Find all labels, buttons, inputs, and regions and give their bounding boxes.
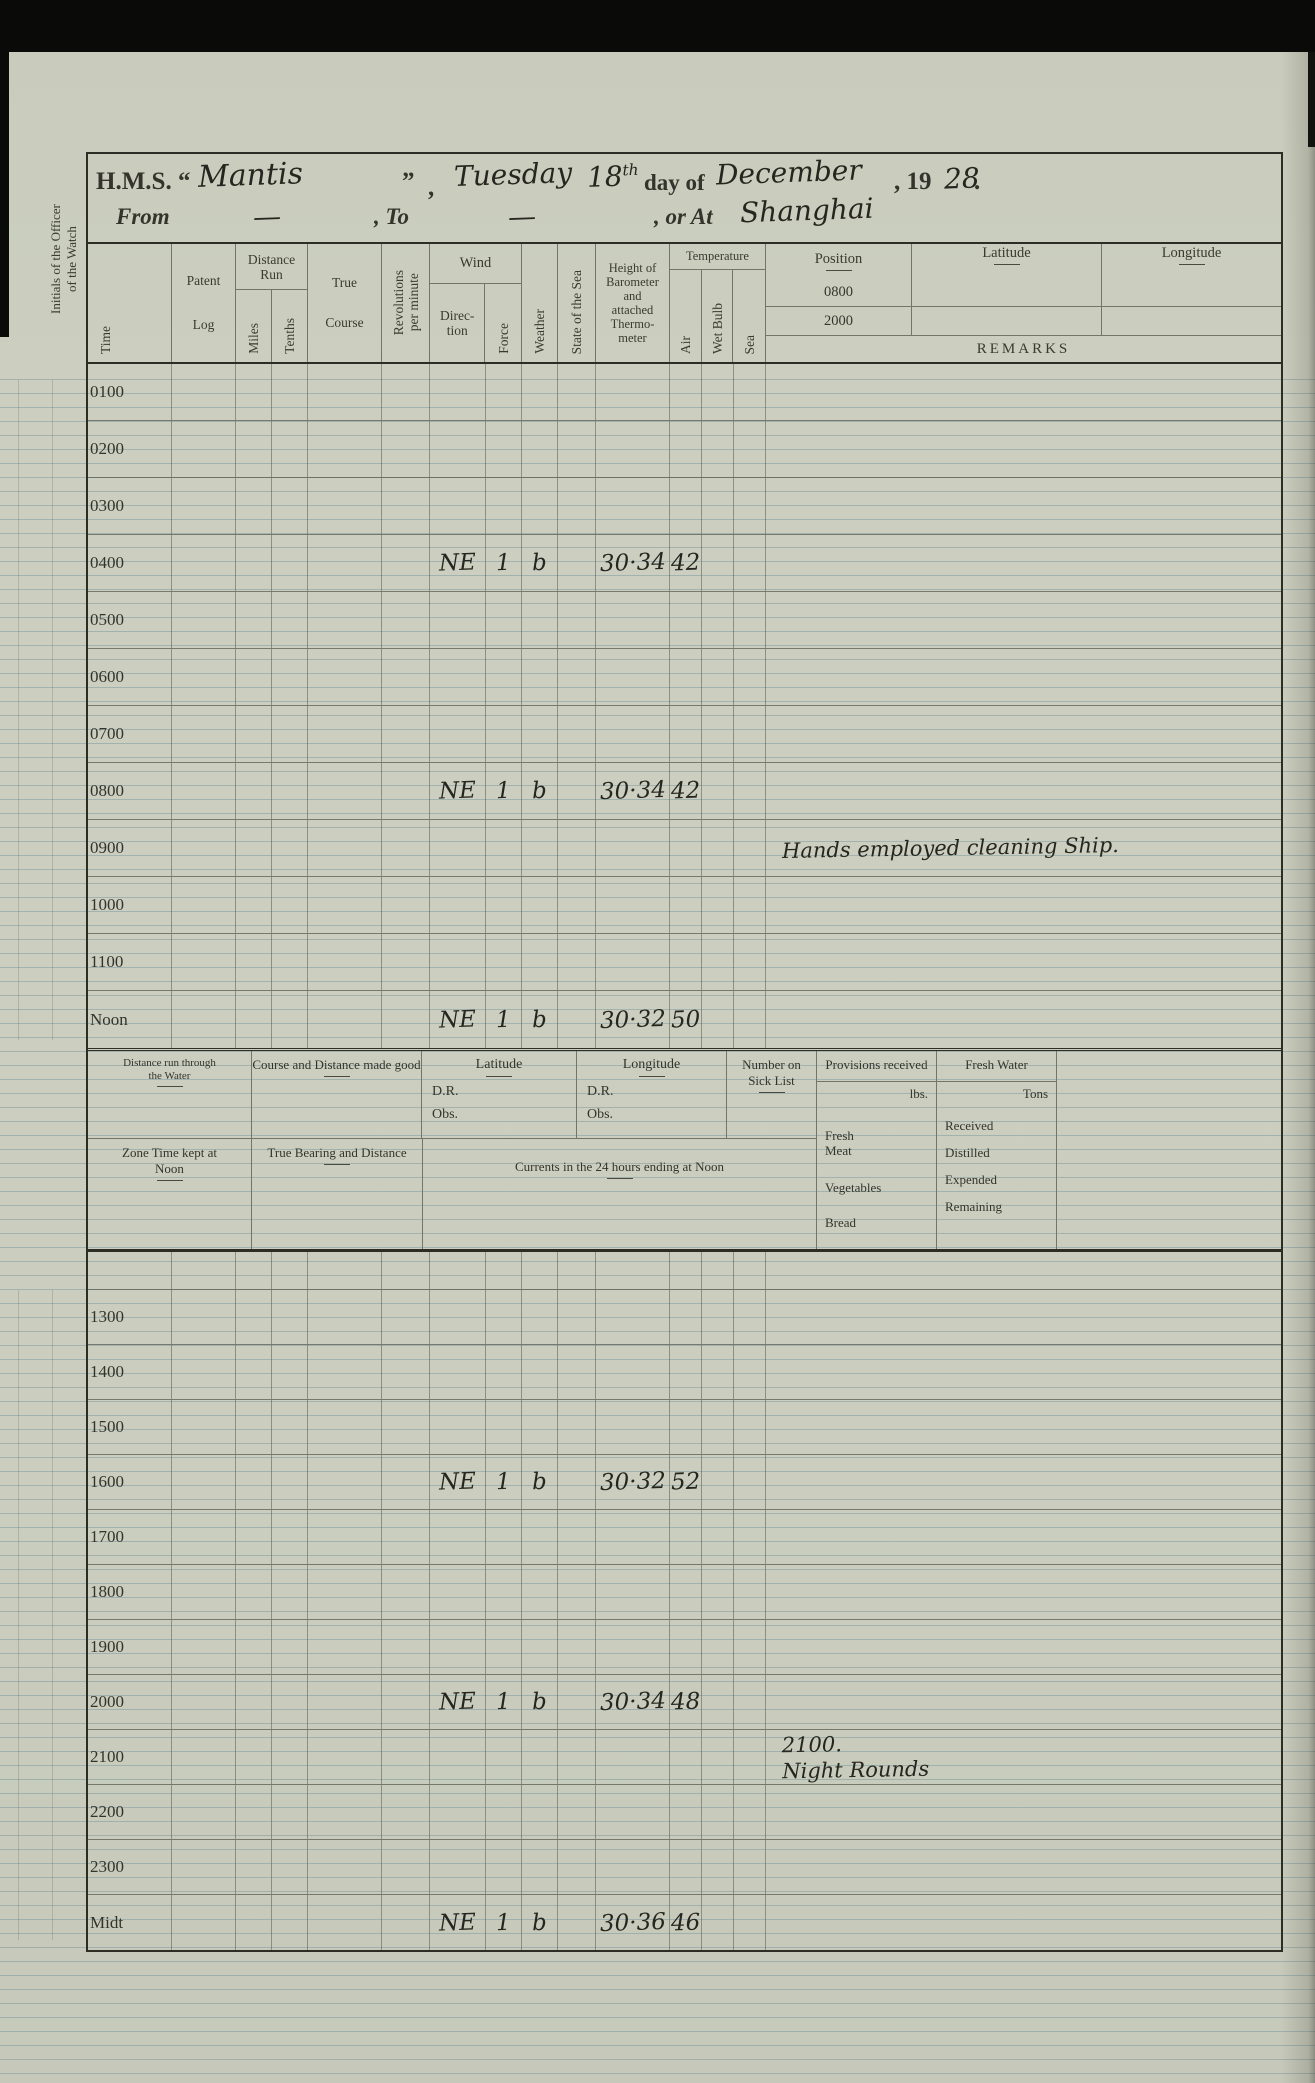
revolutions-cell	[382, 820, 430, 876]
sea-temp-cell	[734, 706, 766, 762]
miles-cell	[236, 1345, 272, 1399]
wind-force-column-header: Force	[485, 284, 521, 362]
log-row: 0200	[88, 421, 1281, 478]
margin-bleed-line	[52, 380, 53, 1040]
sea-temp-cell	[734, 1455, 766, 1509]
wind-direction-cell	[430, 1400, 486, 1454]
barometer-cell: 30·32	[596, 991, 670, 1048]
wind-force-cell	[486, 592, 522, 648]
wind-force-cell	[486, 421, 522, 477]
gap-cell	[272, 1252, 308, 1289]
patent-log-column-header: Patent Log	[172, 244, 236, 362]
wet-bulb-cell	[702, 1675, 734, 1729]
weather-cell	[522, 1730, 558, 1784]
true-course-cell	[308, 1840, 382, 1894]
gap-cell	[734, 1252, 766, 1289]
revolutions-label: Revolutions per minute	[391, 270, 421, 335]
wind-direction-cell: NE	[430, 1675, 486, 1729]
remarks-cell	[766, 1565, 1281, 1619]
barometer-cell	[596, 1400, 670, 1454]
patent-log-cell	[172, 1675, 236, 1729]
barometer-cell	[596, 877, 670, 933]
wind-force-cell	[486, 1290, 522, 1344]
true-course-cell	[308, 1400, 382, 1454]
summary-latitude-cell: Latitude D.R. Obs.	[422, 1051, 577, 1138]
time-value: 0400	[90, 553, 124, 573]
true-course-label: True Course	[325, 273, 363, 333]
patent-log-cell	[172, 478, 236, 534]
revolutions-cell	[382, 478, 430, 534]
wind-direction-cell	[430, 1510, 486, 1564]
sea-state-cell	[558, 1840, 596, 1894]
remarks-cell	[766, 1675, 1281, 1729]
revolutions-cell	[382, 421, 430, 477]
wind-force-cell: 1	[486, 763, 522, 819]
patent-log-cell	[172, 364, 236, 420]
distilled-label: Distilled	[937, 1145, 990, 1160]
sea-temp-cell	[734, 1785, 766, 1839]
weather-value: b	[532, 550, 548, 576]
zone-time-label: Zone Time kept at Noon	[122, 1145, 217, 1177]
weather-cell	[522, 934, 558, 990]
weather-label: Weather	[532, 309, 547, 354]
log-row: 1800	[88, 1565, 1281, 1620]
sea-state-cell	[558, 1895, 596, 1950]
log-row: Noon NE 1 b 30·32 50	[88, 991, 1281, 1048]
log-row: 0100	[88, 364, 1281, 421]
sea-state-cell	[558, 535, 596, 591]
margin-bleed-line	[18, 1290, 19, 1940]
wind-force-cell	[486, 649, 522, 705]
time-cell: 0600	[88, 649, 172, 705]
position-lat-long-header-row: Position Latitude Longitude	[766, 244, 1281, 278]
barometer-cell: 30·34	[596, 1675, 670, 1729]
time-cell: 1500	[88, 1400, 172, 1454]
summary-left-group: Distance run through the Water Course an…	[88, 1051, 817, 1249]
wind-direction-cell: NE	[430, 1895, 486, 1950]
true-course-cell	[308, 1730, 382, 1784]
barometer-cell	[596, 478, 670, 534]
wind-subheaders: Direc- tion Force	[430, 284, 521, 362]
scan-edge-top	[0, 0, 1315, 52]
patent-log-cell	[172, 1455, 236, 1509]
air-temp-cell	[670, 1620, 702, 1674]
remarks-cell	[766, 1455, 1281, 1509]
gap-cell	[766, 1252, 1281, 1289]
wet-bulb-cell	[702, 1730, 734, 1784]
weather-value: b	[532, 1909, 548, 1935]
weather-cell	[522, 364, 558, 420]
time-value: 2100	[90, 1747, 124, 1767]
true-course-cell	[308, 1455, 382, 1509]
wet-bulb-cell	[702, 592, 734, 648]
wind-force-cell	[486, 364, 522, 420]
officer-initials-note: Initials of the Officer of the Watch	[48, 152, 84, 367]
air-temp-cell	[670, 820, 702, 876]
wind-force-cell	[486, 1620, 522, 1674]
wind-direction-cell: NE	[430, 991, 486, 1048]
wind-direction-cell: NE	[430, 763, 486, 819]
true-course-cell	[308, 364, 382, 420]
revolutions-cell	[382, 991, 430, 1048]
tenths-cell	[272, 820, 308, 876]
tenths-cell	[272, 763, 308, 819]
log-row: 0600	[88, 649, 1281, 706]
time-cell: 0400	[88, 535, 172, 591]
gap-cell	[522, 1252, 558, 1289]
wind-header: Wind	[430, 244, 521, 284]
morning-log-rows: 0100 0200	[88, 364, 1281, 1048]
day-of-label: day of	[644, 170, 705, 196]
log-row: 2000 NE 1 b 30·34 48	[88, 1675, 1281, 1730]
wind-direction-cell	[430, 1620, 486, 1674]
true-course-cell	[308, 592, 382, 648]
wind-direction-cell	[430, 478, 486, 534]
true-course-cell	[308, 649, 382, 705]
true-course-cell	[308, 1620, 382, 1674]
patent-log-label: Patent Log	[187, 270, 221, 336]
weather-cell: b	[522, 535, 558, 591]
summary-top-band: Distance run through the Water Course an…	[88, 1051, 817, 1139]
air-column-header: Air	[670, 270, 702, 362]
time-value: 2300	[90, 1857, 124, 1877]
barometer-cell	[596, 1290, 670, 1344]
barometer-value: 30·32	[599, 1005, 666, 1033]
weather-cell: b	[522, 991, 558, 1048]
column-header-row: Time Patent Log Distance Run Miles Tenth…	[88, 242, 1281, 364]
time-value: Noon	[90, 1010, 128, 1030]
longitude-obs-label: Obs.	[577, 1107, 613, 1123]
barometer-value: 30·34	[599, 777, 666, 805]
noon-summary-section: Distance run through the Water Course an…	[88, 1048, 1281, 1252]
weather-cell: b	[522, 763, 558, 819]
time-value: 1000	[90, 895, 124, 915]
weather-cell	[522, 820, 558, 876]
miles-label: Miles	[246, 323, 261, 354]
log-row: 2100 2100. Night Rounds	[88, 1730, 1281, 1785]
wet-bulb-cell	[702, 649, 734, 705]
sea-state-label: State of the Sea	[569, 270, 584, 354]
time-value: 0200	[90, 439, 124, 459]
tenths-cell	[272, 478, 308, 534]
air-temp-cell	[670, 649, 702, 705]
wind-direction-cell	[430, 820, 486, 876]
miles-cell	[236, 763, 272, 819]
sea-state-cell	[558, 1400, 596, 1454]
gap-cell	[486, 1252, 522, 1289]
log-row: 1600 NE 1 b 30·32 52	[88, 1455, 1281, 1510]
true-course-cell	[308, 535, 382, 591]
true-course-cell	[308, 706, 382, 762]
revolutions-cell	[382, 1455, 430, 1509]
patent-log-cell	[172, 421, 236, 477]
air-temp-cell: 52	[670, 1455, 702, 1509]
air-temp-cell	[670, 1565, 702, 1619]
wet-bulb-cell	[702, 1455, 734, 1509]
miles-cell	[236, 1400, 272, 1454]
time-value: 0300	[90, 496, 124, 516]
tenths-cell	[272, 421, 308, 477]
distance-run-group-header: Distance Run Miles Tenths	[236, 244, 308, 362]
wind-force-cell	[486, 478, 522, 534]
time-cell: 1800	[88, 1565, 172, 1619]
log-row: 2200	[88, 1785, 1281, 1840]
air-temp-cell: 50	[670, 991, 702, 1048]
revolutions-cell	[382, 649, 430, 705]
wet-bulb-cell	[702, 877, 734, 933]
revolutions-cell	[382, 535, 430, 591]
time-value: Midt	[90, 1913, 123, 1933]
rule-dash	[994, 264, 1020, 265]
wet-bulb-cell	[702, 1840, 734, 1894]
patent-log-cell	[172, 1785, 236, 1839]
patent-log-cell	[172, 1730, 236, 1784]
revolutions-cell	[382, 1565, 430, 1619]
vegetables-label: Vegetables	[817, 1180, 881, 1195]
wind-force-cell	[486, 1565, 522, 1619]
remarks-cell	[766, 991, 1281, 1048]
wind-force-cell: 1	[486, 1895, 522, 1950]
expended-label: Expended	[937, 1172, 997, 1187]
true-course-column-header: True Course	[308, 244, 382, 362]
received-label: Received	[937, 1118, 993, 1133]
remark-value: 2100. Night Rounds	[782, 1730, 930, 1785]
barometer-cell	[596, 934, 670, 990]
wind-force-cell	[486, 820, 522, 876]
remarks-cell: 2100. Night Rounds	[766, 1730, 1281, 1784]
currents-cell: Currents in the 24 hours ending at Noon	[423, 1139, 817, 1249]
miles-cell	[236, 1895, 272, 1950]
sea-state-column-header: State of the Sea	[558, 244, 596, 362]
revolutions-cell	[382, 1895, 430, 1950]
air-temp-cell	[670, 1510, 702, 1564]
miles-cell	[236, 991, 272, 1048]
log-row: 1900	[88, 1620, 1281, 1675]
time-cell: 1700	[88, 1510, 172, 1564]
wind-force-value: 1	[496, 1469, 512, 1495]
to-label: , To	[374, 204, 409, 230]
log-row: 2300	[88, 1840, 1281, 1895]
temperature-label: Temperature	[686, 249, 749, 264]
time-value: 1100	[90, 952, 123, 972]
barometer-column-header: Height of Barometer and attached Thermo-…	[596, 244, 670, 362]
sea-temp-cell	[734, 763, 766, 819]
wind-force-value: 1	[496, 1006, 512, 1032]
temperature-subheaders: Air Wet Bulb Sea	[670, 270, 765, 362]
latitude-dr-label: D.R.	[422, 1084, 458, 1100]
sea-state-cell	[558, 1455, 596, 1509]
barometer-cell	[596, 1565, 670, 1619]
wind-force-cell: 1	[486, 535, 522, 591]
log-row: 1500	[88, 1400, 1281, 1455]
weather-cell	[522, 1510, 558, 1564]
latitude-label: Latitude	[982, 246, 1030, 261]
sick-list-label: Number on Sick List	[742, 1057, 801, 1089]
weather-cell	[522, 478, 558, 534]
wind-label: Wind	[460, 256, 492, 271]
wet-bulb-cell	[702, 478, 734, 534]
miles-cell	[236, 592, 272, 648]
time-value: 0700	[90, 724, 124, 744]
wet-bulb-cell	[702, 421, 734, 477]
tenths-cell	[272, 1290, 308, 1344]
remark-value: Hands employed cleaning Ship.	[782, 832, 1119, 864]
weather-cell	[522, 1785, 558, 1839]
wet-bulb-cell	[702, 934, 734, 990]
ship-name: Mantis	[197, 156, 303, 195]
air-temp-cell	[670, 1730, 702, 1784]
barometer-value: 30·34	[599, 549, 666, 577]
sea-temp-cell	[734, 1345, 766, 1399]
barometer-cell	[596, 1620, 670, 1674]
rule-dash	[607, 1178, 633, 1179]
distance-through-water-cell: Distance run through the Water	[88, 1051, 252, 1138]
scanned-logbook-page: Initials of the Officer of the Watch H.M…	[0, 0, 1315, 2083]
to-value: —	[507, 200, 536, 234]
log-row: 1300	[88, 1290, 1281, 1345]
gap-cell	[382, 1252, 430, 1289]
wind-direction-cell	[430, 1730, 486, 1784]
fresh-water-label: Fresh Water	[937, 1051, 1056, 1082]
air-temp-cell: 48	[670, 1675, 702, 1729]
weather-cell	[522, 1290, 558, 1344]
rule-dash	[759, 1092, 785, 1093]
wind-direction-value: NE	[439, 1006, 477, 1033]
day-number: 18th	[586, 159, 639, 194]
air-temp-value: 46	[670, 1909, 700, 1936]
wind-direction-cell	[430, 1345, 486, 1399]
at-value: Shanghai	[739, 192, 874, 230]
weather-column-header: Weather	[522, 244, 558, 362]
gap-cell	[558, 1252, 596, 1289]
summary-longitude-label: Longitude	[623, 1057, 681, 1073]
patent-log-cell	[172, 763, 236, 819]
weather-cell	[522, 421, 558, 477]
gap-cell	[172, 1252, 236, 1289]
weather-cell	[522, 706, 558, 762]
tenths-cell	[272, 649, 308, 705]
tenths-cell	[272, 1345, 308, 1399]
barometer-cell	[596, 1730, 670, 1784]
wet-bulb-cell	[702, 1345, 734, 1399]
bread-label: Bread	[817, 1215, 856, 1230]
summary-latitude-label: Latitude	[476, 1057, 523, 1073]
time-cell: 0500	[88, 592, 172, 648]
summary-blank-cell	[1057, 1051, 1281, 1249]
sea-state-cell	[558, 478, 596, 534]
tenths-label: Tenths	[282, 318, 297, 354]
time-value: 0900	[90, 838, 124, 858]
comma: ,	[428, 174, 434, 202]
sea-state-cell	[558, 877, 596, 933]
longitude-header: Longitude	[1101, 244, 1281, 278]
true-course-cell	[308, 877, 382, 933]
time-column-header: Time	[88, 244, 172, 362]
patent-log-cell	[172, 934, 236, 990]
gap-cell	[236, 1252, 272, 1289]
time-value: 1700	[90, 1527, 124, 1547]
wet-bulb-cell	[702, 1290, 734, 1344]
remarks-cell	[766, 1620, 1281, 1674]
log-row: 0900 Hands employed cleaning Ship.	[88, 820, 1281, 877]
time-value: 1400	[90, 1362, 124, 1382]
wind-force-cell	[486, 877, 522, 933]
sea-temp-cell	[734, 1730, 766, 1784]
true-course-cell	[308, 1510, 382, 1564]
time-cell: Midt	[88, 1895, 172, 1950]
tenths-cell	[272, 1400, 308, 1454]
air-temp-cell: 42	[670, 535, 702, 591]
miles-cell	[236, 1840, 272, 1894]
log-row: 1100	[88, 934, 1281, 991]
remarks-cell	[766, 1785, 1281, 1839]
lbs-unit-label: lbs.	[910, 1082, 936, 1102]
wind-force-cell: 1	[486, 1455, 522, 1509]
position-2000-row: 2000	[766, 307, 1281, 336]
barometer-cell	[596, 706, 670, 762]
tenths-cell	[272, 364, 308, 420]
rule-dash	[826, 270, 852, 271]
longitude-label: Longitude	[1162, 246, 1222, 261]
true-bearing-label: True Bearing and Distance	[267, 1145, 406, 1161]
revolutions-cell	[382, 1400, 430, 1454]
wind-direction-cell	[430, 1565, 486, 1619]
sea-temp-cell	[734, 535, 766, 591]
wind-direction-cell	[430, 421, 486, 477]
miles-cell	[236, 934, 272, 990]
tenths-cell	[272, 1510, 308, 1564]
wet-bulb-label: Wet Bulb	[710, 303, 725, 354]
log-row: 0500	[88, 592, 1281, 649]
wind-direction-cell	[430, 934, 486, 990]
rule-dash	[324, 1164, 350, 1165]
wind-force-value: 1	[496, 1689, 512, 1715]
weekday: Tuesday	[453, 156, 572, 193]
sea-state-cell	[558, 1345, 596, 1399]
remarks-cell	[766, 1345, 1281, 1399]
patent-log-cell	[172, 1400, 236, 1454]
wind-direction-cell	[430, 1840, 486, 1894]
remarks-cell	[766, 649, 1281, 705]
miles-cell	[236, 478, 272, 534]
air-temp-value: 48	[670, 1688, 700, 1715]
weather-cell: b	[522, 1455, 558, 1509]
sea-temp-cell	[734, 1675, 766, 1729]
title-band: H.M.S. “ Mantis ” , Tuesday 18th day of …	[88, 154, 1281, 242]
tenths-cell	[272, 592, 308, 648]
revolutions-cell	[382, 592, 430, 648]
position-0800-row: 0800	[766, 278, 1281, 307]
sea-temp-cell	[734, 592, 766, 648]
revolutions-cell	[382, 877, 430, 933]
wet-bulb-cell	[702, 1400, 734, 1454]
time-cell: 1600	[88, 1455, 172, 1509]
air-temp-cell	[670, 364, 702, 420]
sea-temp-cell	[734, 364, 766, 420]
remarks-cell	[766, 535, 1281, 591]
currents-label: Currents in the 24 hours ending at Noon	[515, 1159, 724, 1175]
time-cell: 2000	[88, 1675, 172, 1729]
sea-temp-cell	[734, 1620, 766, 1674]
rule-dash	[486, 1076, 512, 1077]
air-temp-cell	[670, 934, 702, 990]
wind-force-cell	[486, 1400, 522, 1454]
gap-cell	[702, 1252, 734, 1289]
tenths-cell	[272, 1840, 308, 1894]
barometer-value: 30·36	[599, 1908, 666, 1936]
tenths-cell	[272, 1730, 308, 1784]
air-temp-cell	[670, 592, 702, 648]
